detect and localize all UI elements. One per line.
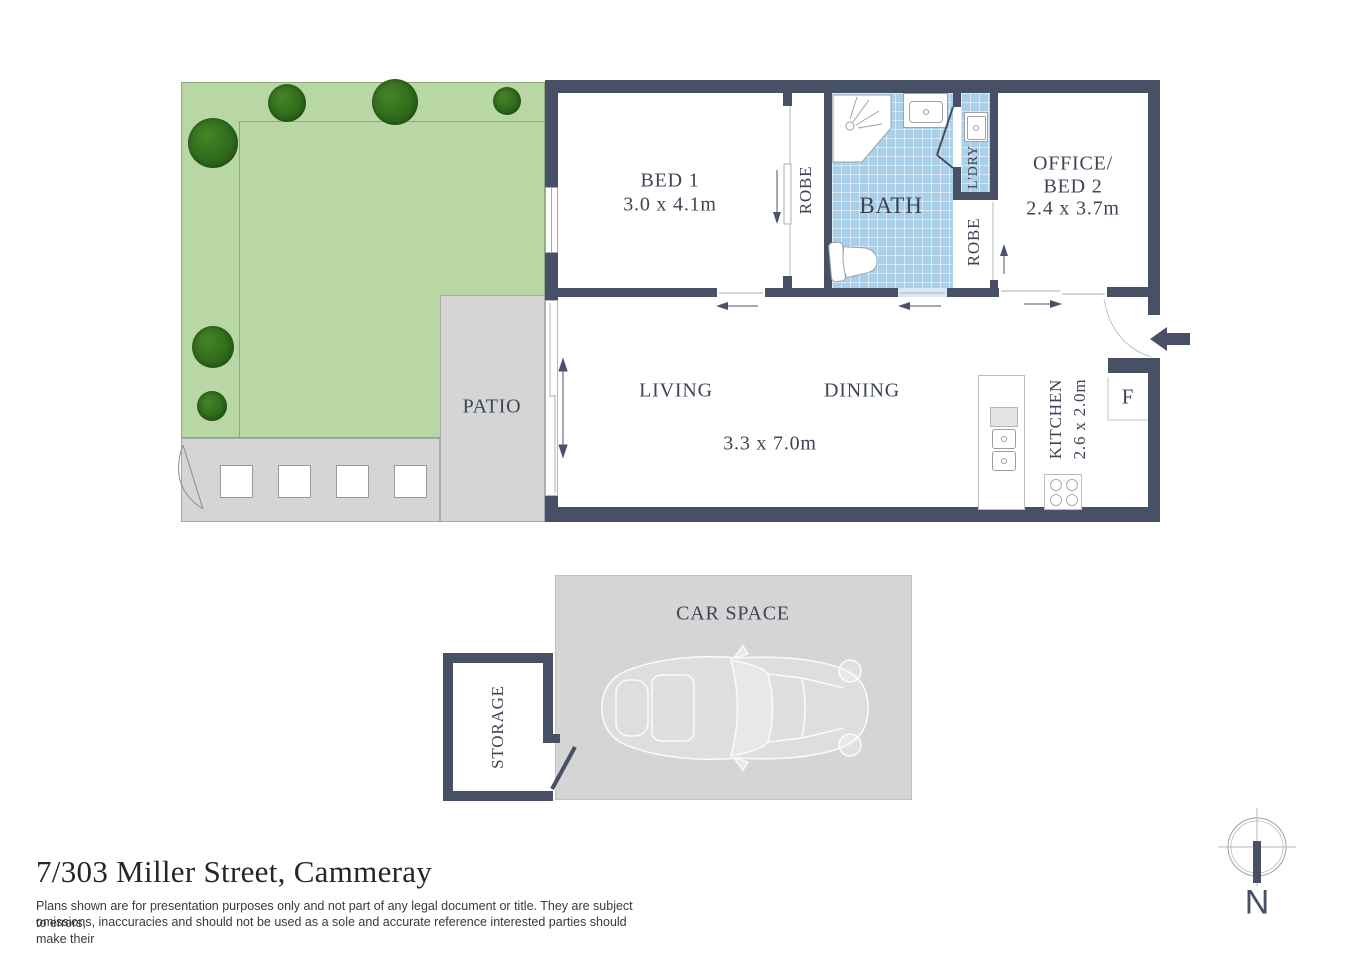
patio-sliding-door [545,300,558,496]
storage-wall [443,653,453,801]
laundry-label: L'DRY [966,145,982,189]
window [545,187,558,253]
office-label-line1: OFFICE/ [1033,153,1113,176]
wall [947,288,999,297]
paver [278,465,311,498]
entry-door-arc [1104,299,1151,357]
disclaimer-line2: omissions, inaccuracies and should not b… [36,914,646,947]
patio-door-arrow [559,359,567,457]
paver [336,465,369,498]
wall [783,93,792,106]
sink-bowl [992,429,1016,449]
wall [990,93,998,200]
living-label: LIVING [639,380,713,403]
tree [268,84,306,122]
fridge-label: F [1122,385,1134,410]
office-label-line2: BED 2 [1044,176,1103,199]
kitchen-dims: 2.6 x 2.0m [1070,379,1090,460]
bed1-dims: 3.0 x 4.1m [623,194,717,217]
wall [545,496,558,522]
wall [1148,80,1160,315]
robe2-sliding-door [993,202,1008,280]
robe2-label: ROBE [964,218,984,267]
wall [953,167,961,192]
wall [1108,358,1160,373]
stove-cooktop [1044,474,1082,510]
floorplan-image: BED 1 3.0 x 4.1m ROBE BATH L'DRY ROBE OF… [0,0,1357,960]
robe1-label: ROBE [796,166,816,215]
bed1-label: BED 1 [641,170,700,193]
tree [188,118,238,168]
storage-label: STORAGE [488,685,508,769]
wall [990,280,998,288]
compass-north-label: N [1245,884,1270,923]
tree [192,326,234,368]
page-title: 7/303 Miller Street, Cammeray [36,854,432,890]
storage-wall [443,653,553,663]
robe1-sliding-door [773,106,791,276]
patio-label: PATIO [463,396,522,419]
laundry-tub [964,112,988,142]
wall [824,93,832,288]
wall [545,80,1160,93]
car-illustration [588,644,880,772]
paver [220,465,253,498]
wall [545,80,558,187]
office-dims: 2.4 x 3.7m [1026,198,1120,221]
storage-wall [543,653,553,735]
kitchen-label: KITCHEN [1046,379,1066,459]
storage-wall [443,791,553,801]
car-space-label: CAR SPACE [676,603,790,626]
vanity-basin [903,93,948,128]
dining-label: DINING [824,380,900,403]
tree [493,87,521,115]
living-dining-dims: 3.3 x 7.0m [723,433,817,456]
paver [394,465,427,498]
wall [783,276,792,288]
compass [1212,803,1302,893]
sink-splashback [990,407,1018,427]
sliding-door-opening-bath [898,288,947,297]
compass-needle [1253,841,1261,883]
sliding-door-opening-office [999,288,1107,297]
wall [545,288,717,297]
wall [953,93,961,107]
entry-arrow [1150,327,1190,351]
sliding-door-opening-bed1 [717,288,765,297]
tree [372,79,418,125]
storage-wall [543,734,560,743]
wall [1148,358,1160,522]
tree [197,391,227,421]
sink-bowl [992,451,1016,471]
bath-label: BATH [859,193,922,219]
wall [765,288,898,297]
wall [1107,287,1160,297]
